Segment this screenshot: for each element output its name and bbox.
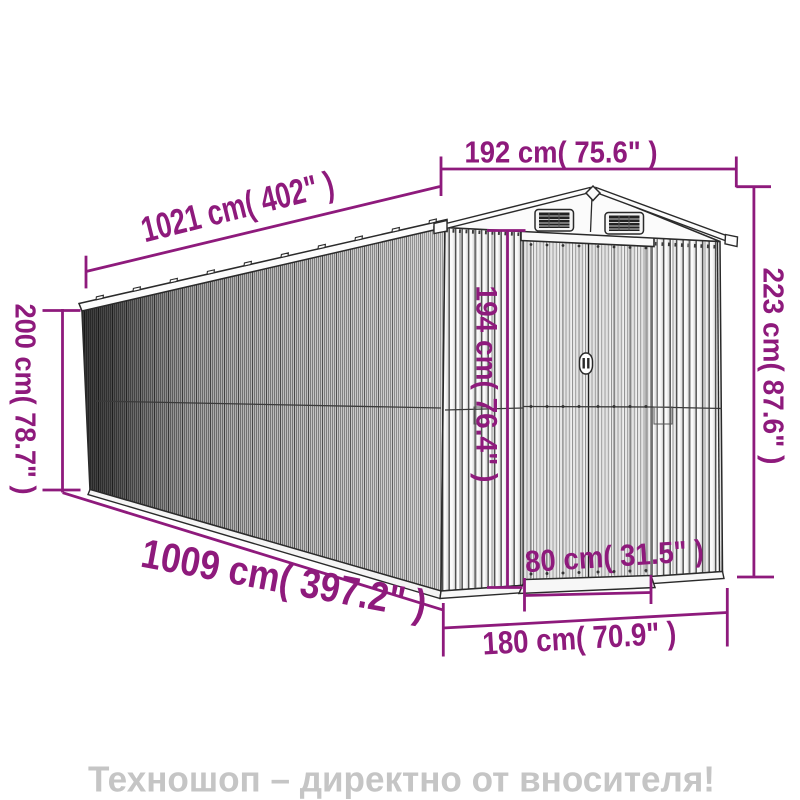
svg-text:200 cm( 78.7" ): 200 cm( 78.7" )	[9, 304, 41, 495]
svg-text:1021 cm( 402" ): 1021 cm( 402" )	[137, 163, 338, 250]
svg-text:194 cm( 76.4" ): 194 cm( 76.4" )	[470, 286, 503, 483]
svg-text:180 cm( 70.9" ): 180 cm( 70.9" )	[481, 614, 677, 661]
svg-text:223 cm( 87.6" ): 223 cm( 87.6" )	[756, 268, 788, 465]
svg-text:Техношоп – директно от вносите: Техношоп – директно от вносителя!	[88, 759, 715, 800]
svg-text:192 cm( 75.6" ): 192 cm( 75.6" )	[465, 135, 658, 170]
